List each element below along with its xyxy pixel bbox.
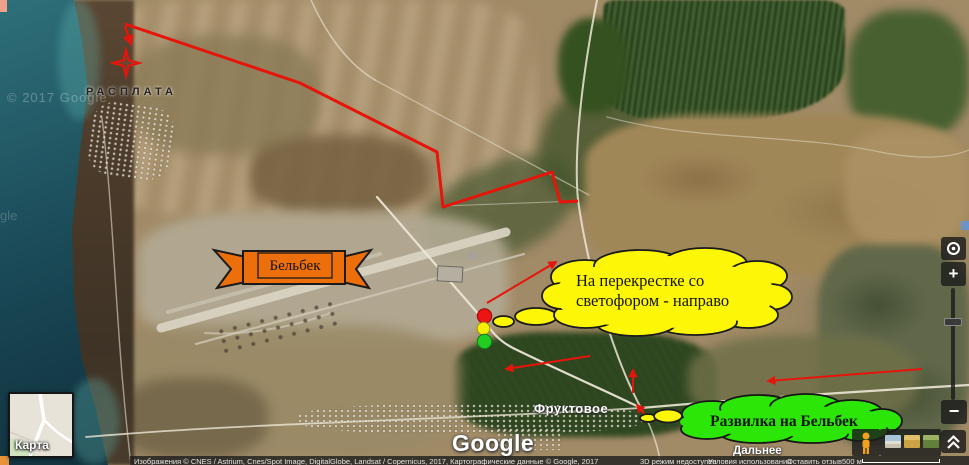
google-logo: Google — [452, 430, 534, 457]
road-network — [0, 0, 969, 465]
route-annotations — [0, 0, 969, 465]
terrain-patch — [250, 135, 430, 215]
photo-thumbnail[interactable] — [923, 435, 939, 448]
terrain-patch — [130, 35, 320, 155]
forest-patch — [603, 0, 845, 120]
direction-arrows — [487, 262, 922, 419]
corner-fragment — [961, 221, 969, 230]
traffic-note: На перекрестке со светофором - направо — [576, 271, 766, 311]
photo-thumbnail[interactable] — [885, 435, 901, 448]
forest-patch — [848, 10, 969, 140]
terrain-base — [0, 0, 969, 465]
forest-patch — [452, 332, 717, 437]
pegman-icon — [852, 429, 880, 456]
zoom-slider-handle[interactable] — [944, 318, 962, 326]
google-watermark-partial: gle — [0, 208, 17, 223]
settlement-label-rasplata: РАСПЛАТА — [86, 86, 177, 98]
zoom-in-button[interactable]: + — [941, 262, 966, 286]
terms-link[interactable]: Условия использования — [708, 457, 791, 465]
sea-shallow — [58, 0, 100, 120]
terrain-patch — [688, 335, 918, 425]
speech-cloud-yellow-core — [555, 256, 776, 328]
location-icon — [941, 237, 966, 260]
terrain-patch — [585, 115, 969, 275]
settlement-label-fruktovoe: Фруктовое — [534, 401, 608, 416]
traffic-light-marker — [477, 309, 491, 349]
terrain-patch — [408, 135, 591, 284]
speech-cloud-yellow — [493, 248, 792, 423]
attribution-bar: Изображения © CNES / Astrium, Cnes/Spot … — [130, 456, 969, 465]
airfield-building — [437, 265, 464, 282]
chevron-up-icon — [941, 430, 966, 453]
traffic-note-line1: На перекрестке со — [576, 271, 766, 291]
route-line — [125, 24, 578, 207]
ribbon-banner — [214, 250, 371, 288]
traffic-note-line2: светофором - направо — [576, 291, 766, 311]
zoom-slider-track[interactable] — [951, 288, 955, 400]
my-location-button[interactable] — [941, 237, 966, 260]
collapse-controls-button[interactable] — [941, 430, 966, 453]
mode-3d-notice: 3D режим недоступен — [640, 457, 716, 465]
forest-patch — [558, 18, 628, 113]
satellite-map-canvas[interactable]: РАСПЛАТА Фруктовое Дальнее © 2017 Google… — [0, 0, 969, 465]
minimap-label: Карта — [15, 438, 49, 452]
airfield-building — [468, 252, 478, 260]
corner-fragment — [0, 0, 7, 12]
village-rasplata — [85, 99, 177, 184]
photo-thumbnail[interactable] — [904, 435, 920, 448]
scale-label: 500 м — [842, 457, 862, 465]
sea-shallow — [68, 378, 120, 465]
destination-star-marker — [113, 50, 139, 76]
imagery-attribution: Изображения © CNES / Astrium, Cnes/Spot … — [134, 457, 598, 465]
destination-arrow — [125, 26, 131, 44]
zoom-out-button[interactable]: − — [941, 400, 967, 424]
feedback-link[interactable]: Оставить отзыв — [787, 457, 842, 465]
terrain-patch — [95, 0, 535, 215]
imagery-thumbnails-bar[interactable] — [880, 429, 941, 456]
terrain-patch — [845, 130, 969, 245]
pegman-button[interactable] — [852, 429, 880, 456]
scale-bar — [862, 459, 940, 463]
terrain-patch — [118, 378, 268, 458]
terrain-patch — [523, 73, 677, 227]
airfield-area — [138, 212, 508, 347]
map-mode-toggle[interactable]: Карта — [8, 392, 74, 458]
fork-note: Развилка на Бельбек — [699, 414, 869, 430]
parked-aircraft-row — [213, 297, 346, 358]
google-watermark: © 2017 Google — [7, 90, 108, 105]
terrain-patch — [90, 325, 460, 455]
banner-label: Бельбек — [256, 254, 334, 278]
